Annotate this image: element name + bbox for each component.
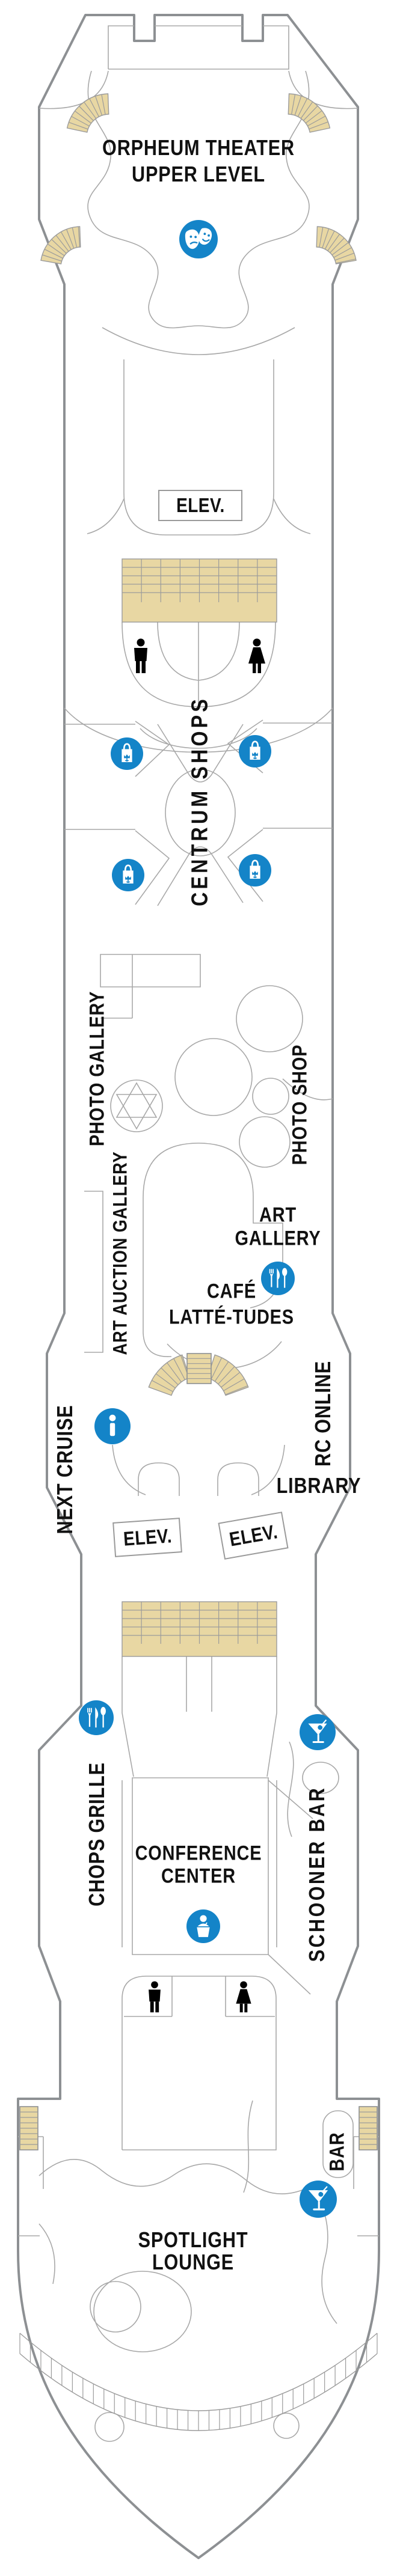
dining-icon	[79, 1700, 114, 1735]
orpheum-theater-label-line1: ORPHEUM THEATER	[102, 135, 295, 160]
orpheum-theater-label-line2: UPPER LEVEL	[132, 162, 265, 187]
conference-center-label-line1: CONFERENCE	[135, 1842, 262, 1866]
theater-masks-icon	[179, 220, 218, 258]
elevator-label-1: ELEV.	[176, 494, 225, 517]
cafe-lattetudes-label-line2: LATTÉ-TUDES	[169, 1306, 294, 1329]
schooner-bar-label: SCHOONER BAR	[304, 1786, 330, 1962]
deck-structure-drawing	[0, 0, 397, 2576]
lectern-speaker-icon	[186, 1909, 220, 1943]
photo-gallery-label: PHOTO GALLERY	[86, 991, 109, 1146]
ship-deck-plan: ORPHEUM THEATER UPPER LEVEL ELEV. CENTRU…	[0, 0, 397, 2576]
elevator-label-box-2: ELEV.	[112, 1518, 182, 1557]
martini-icon	[300, 1714, 336, 1750]
art-auction-gallery-label: ART AUCTION GALLERY	[109, 1151, 132, 1355]
dining-icon	[261, 1262, 295, 1295]
centrum-shops-label: CENTRUM SHOPS	[188, 696, 214, 906]
chops-grille-label: CHOPS GRILLE	[84, 1762, 109, 1906]
shopping-bag-icon	[239, 735, 271, 768]
conference-center-label-line2: CENTER	[161, 1865, 236, 1888]
elevator-label-3: ELEV.	[227, 1520, 279, 1551]
next-cruise-label: NEXT CRUISE	[52, 1405, 78, 1534]
info-icon	[94, 1408, 131, 1444]
mens-restroom-icon	[144, 1981, 165, 2013]
womens-restroom-icon	[245, 638, 269, 675]
cafe-lattetudes-label-line1: CAFÉ	[207, 1280, 256, 1304]
spotlight-lounge-label-line1: SPOTLIGHT	[138, 2227, 248, 2253]
mens-restroom-icon	[129, 638, 153, 675]
hull-outline	[18, 15, 379, 2558]
shopping-bag-icon	[239, 854, 271, 887]
womens-restroom-icon	[233, 1981, 254, 2013]
shopping-bag-icon	[111, 737, 143, 770]
martini-icon	[300, 2181, 337, 2218]
rc-online-label: RC ONLINE	[310, 1361, 336, 1467]
library-label: LIBRARY	[277, 1473, 362, 1498]
photo-shop-label: PHOTO SHOP	[289, 1045, 312, 1165]
shopping-bag-icon	[112, 859, 144, 891]
elevator-label-box-1: ELEV.	[158, 490, 242, 521]
spotlight-lounge-label-line2: LOUNGE	[152, 2250, 234, 2275]
elevator-label-2: ELEV.	[122, 1524, 172, 1551]
art-gallery-label-line2: GALLERY	[235, 1227, 321, 1251]
bar-label: BAR	[326, 2132, 349, 2171]
art-gallery-label-line1: ART	[259, 1204, 297, 1227]
